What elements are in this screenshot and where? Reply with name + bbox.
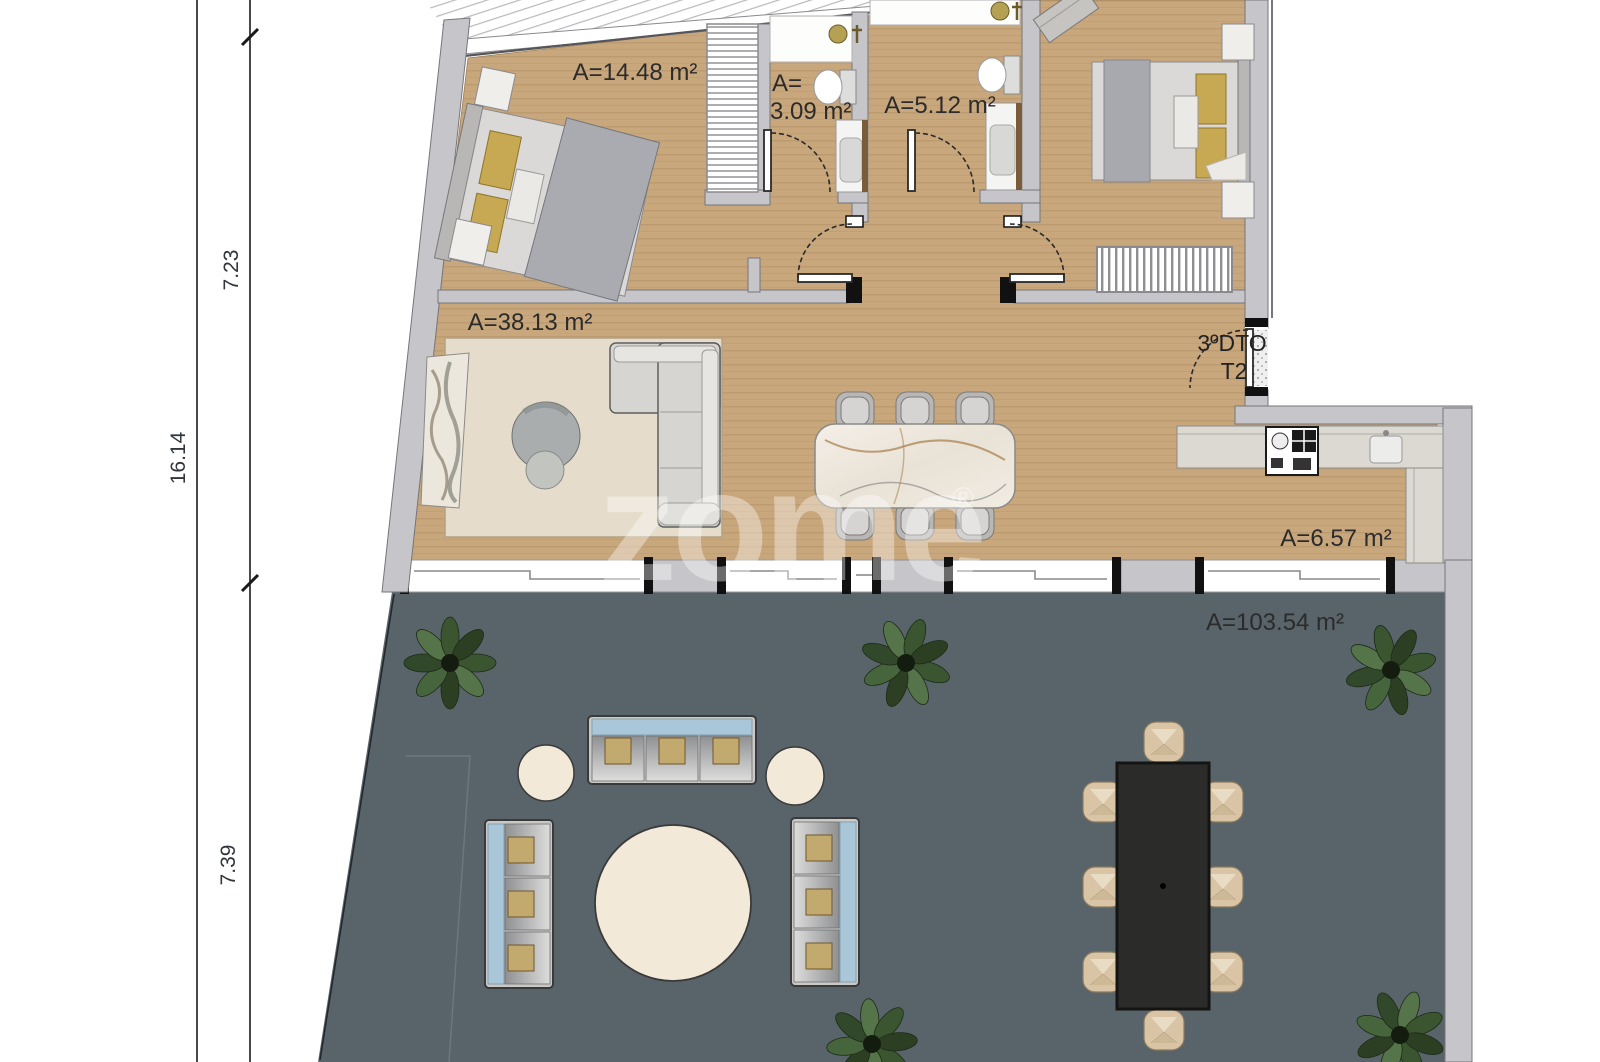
kitchen-area-label: A=6.57 m² [1280, 525, 1391, 552]
bedroom1-wardrobe [707, 24, 758, 192]
dimension-lines [197, 0, 258, 1062]
wall-stub [748, 258, 760, 292]
outdoor-side-table [518, 745, 574, 801]
entry-unit-label: 3ºDTO [1197, 330, 1266, 356]
kitchen-top-wall [1235, 406, 1472, 424]
outdoor-sofa-top [588, 716, 756, 784]
bed2-nightstand [1222, 24, 1254, 60]
bed1-nightstand [474, 67, 515, 111]
outdoor-sofa-left [485, 820, 553, 988]
bedroom1-area-label: A=14.48 m² [573, 59, 698, 86]
bathroom1-faucet-icon [829, 25, 847, 43]
bed1-nightstand [448, 219, 492, 266]
outdoor-center-table [595, 825, 751, 981]
bathroom2-toilet [978, 58, 1006, 92]
bedroom2-wardrobe [1097, 247, 1232, 292]
bed2-nightstand [1222, 182, 1254, 218]
dimension-upper: 7.23 [220, 250, 243, 291]
plant-icon [404, 617, 496, 709]
kitchen-counter-return [1406, 468, 1443, 563]
bathroom1-area-label-line1: A= [772, 70, 802, 97]
pouf [526, 451, 564, 489]
bed2-pillow [1196, 74, 1226, 124]
bath2-bedroom2-wall [1022, 0, 1040, 222]
floor-plan-drawing: 16.14 7.23 7.39 [0, 0, 1600, 1062]
watermark-text: zome [598, 438, 982, 614]
bath2-bottom-wall [980, 190, 1040, 203]
floor-plan-page: 16.14 7.23 7.39 [0, 0, 1600, 1062]
dimension-total: 16.14 [167, 431, 190, 484]
watermark-reg-icon: ® [952, 482, 974, 515]
bathroom2-area-label: A=5.12 m² [884, 92, 995, 119]
sofa-back-cushion [614, 346, 716, 362]
bathroom1-area-label-line2: 3.09 m² [770, 98, 851, 125]
terrace-area-label: A=103.54 m² [1206, 609, 1344, 636]
outdoor-sofa-right [791, 818, 859, 986]
living-area-label: A=38.13 m² [468, 309, 593, 336]
kitchen-right-wall [1443, 408, 1472, 563]
outdoor-side-table [766, 747, 824, 805]
terrace-right-wall [1445, 560, 1472, 1062]
dimension-lower: 7.39 [217, 845, 240, 886]
stove-icon [1266, 427, 1318, 475]
hall-wall-left [438, 290, 848, 303]
bed2-runner [1104, 60, 1150, 182]
bed2-tray [1174, 96, 1198, 148]
bathroom2-faucet-icon [991, 2, 1009, 20]
watermark: zome ® [598, 438, 982, 614]
entry-type-label: T2 [1221, 358, 1248, 384]
